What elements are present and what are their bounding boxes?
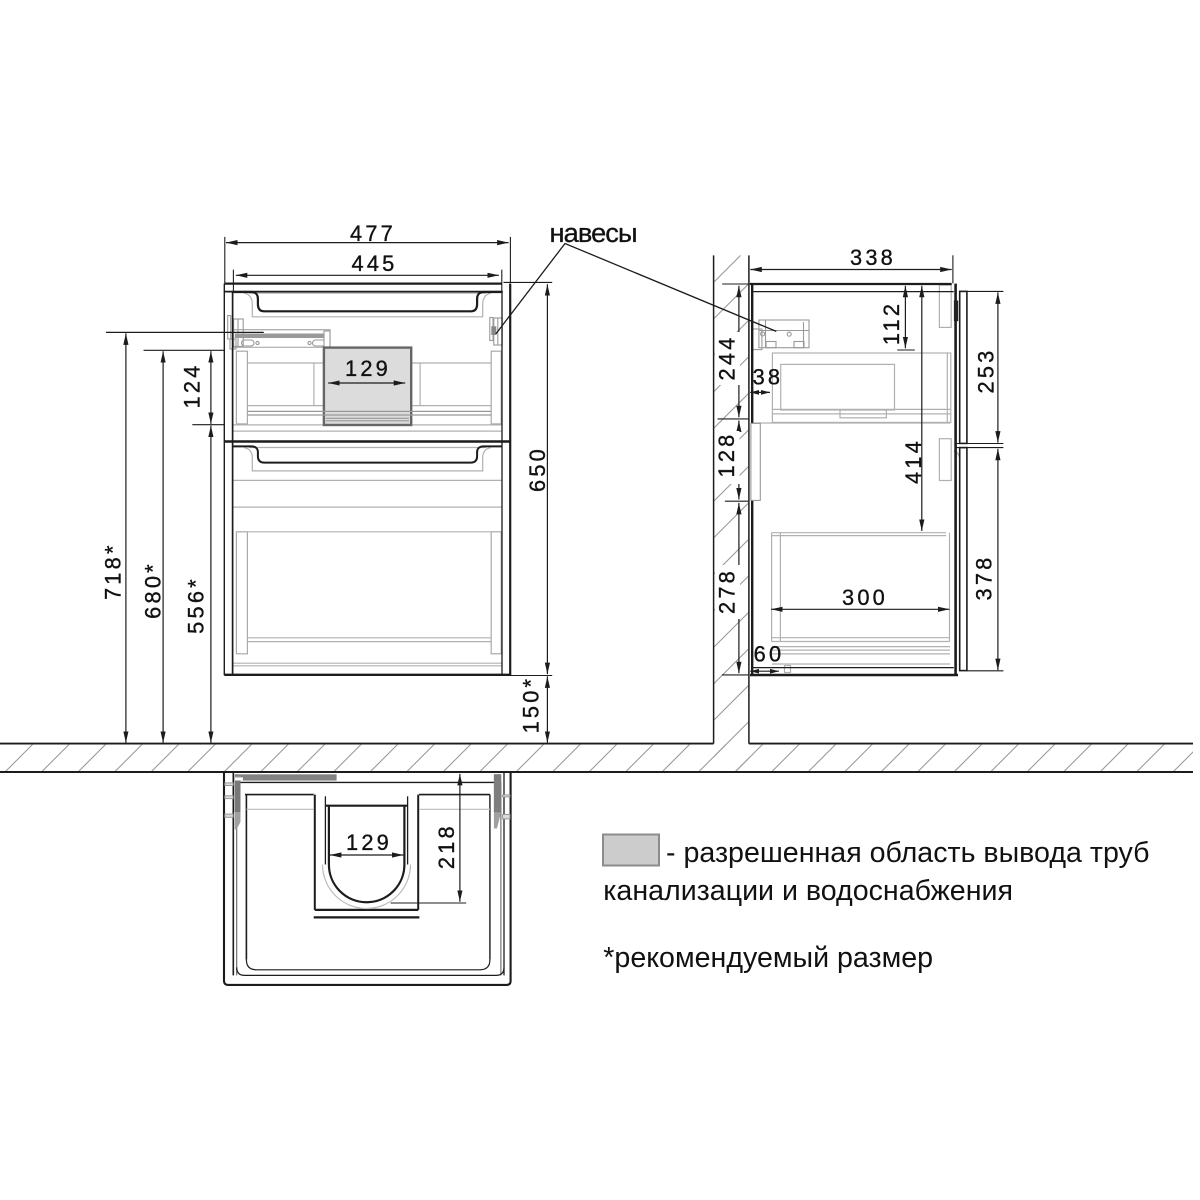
svg-text:218: 218 <box>434 823 459 869</box>
svg-text:278: 278 <box>714 568 739 614</box>
svg-text:378: 378 <box>972 555 997 601</box>
svg-text:124: 124 <box>179 363 204 409</box>
svg-text:129: 129 <box>346 830 392 855</box>
svg-text:445: 445 <box>352 251 398 276</box>
svg-text:60: 60 <box>754 642 785 667</box>
svg-text:680*: 680* <box>140 561 165 619</box>
svg-text:128: 128 <box>714 432 739 478</box>
svg-text:112: 112 <box>879 301 904 345</box>
svg-text:556*: 556* <box>183 576 208 634</box>
svg-text:338: 338 <box>850 245 896 270</box>
svg-text:300: 300 <box>842 585 888 610</box>
svg-text:канализации и водоснабжения: канализации и водоснабжения <box>603 875 1013 907</box>
svg-text:*рекомендуемый размер: *рекомендуемый размер <box>603 942 933 974</box>
svg-text:477: 477 <box>350 221 396 246</box>
svg-text:129: 129 <box>345 356 391 381</box>
svg-text:- разрешенная область вывода т: - разрешенная область вывода труб <box>666 837 1150 869</box>
svg-text:414: 414 <box>901 438 926 484</box>
svg-text:253: 253 <box>973 348 998 394</box>
svg-text:650: 650 <box>525 446 550 492</box>
svg-text:244: 244 <box>715 335 740 381</box>
svg-text:150*: 150* <box>518 676 543 734</box>
svg-text:навесы: навесы <box>550 217 637 248</box>
svg-text:718*: 718* <box>100 542 125 600</box>
svg-text:38: 38 <box>753 365 784 390</box>
